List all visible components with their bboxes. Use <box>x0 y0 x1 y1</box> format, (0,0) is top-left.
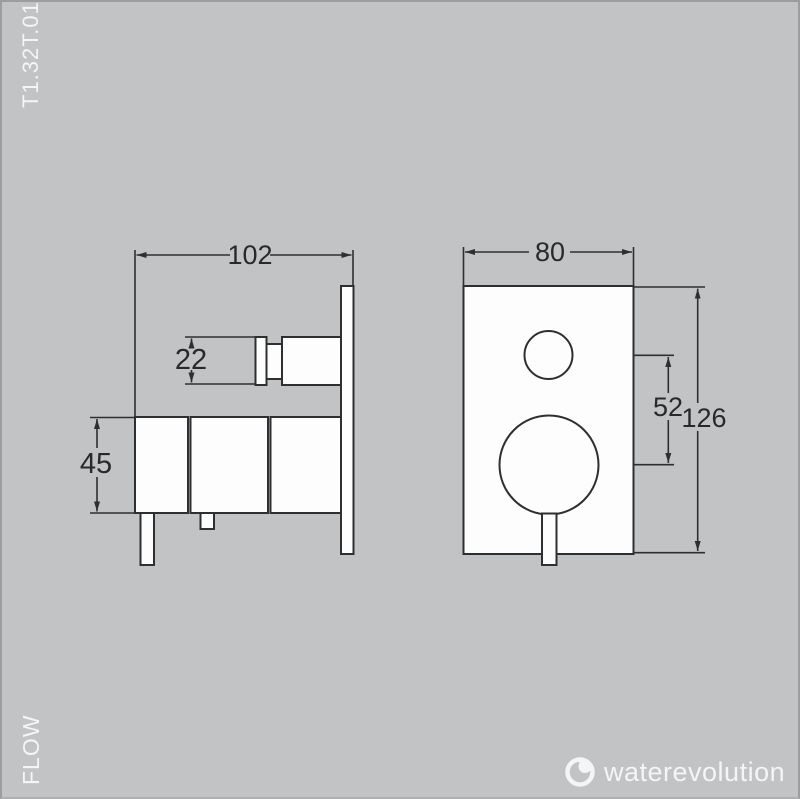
brand-logo: waterevolution <box>564 752 785 792</box>
front-mixer-control <box>500 416 599 515</box>
side-wall-plate <box>341 286 354 554</box>
side-knob-cap <box>256 337 267 385</box>
side-knob-stem <box>267 344 283 379</box>
dim-102-value: 102 <box>227 240 272 270</box>
dim-22-value: 22 <box>175 344 207 376</box>
side-lever-handle <box>141 513 155 565</box>
dim-102 <box>135 250 353 416</box>
dim-52-value: 52 <box>653 392 683 422</box>
front-lever-handle <box>542 514 557 566</box>
dim-45-value: 45 <box>80 448 112 480</box>
front-view <box>464 286 634 565</box>
dim-126-value: 126 <box>681 403 726 433</box>
side-body-section-2 <box>191 417 269 513</box>
brand-name: waterevolution <box>604 757 785 788</box>
side-view <box>135 286 354 565</box>
front-diverter-knob <box>525 331 573 379</box>
side-body-section-1 <box>135 417 188 513</box>
technical-drawing: 102 22 45 <box>2 2 800 799</box>
dim-80-value: 80 <box>535 237 565 267</box>
side-knob-body <box>282 337 341 385</box>
spec-sheet: T1.32T.01 FLOW <box>0 0 800 799</box>
side-body-section-3 <box>271 417 342 513</box>
side-outlet-stub <box>201 513 215 529</box>
waterevolution-drop-icon <box>564 755 598 789</box>
